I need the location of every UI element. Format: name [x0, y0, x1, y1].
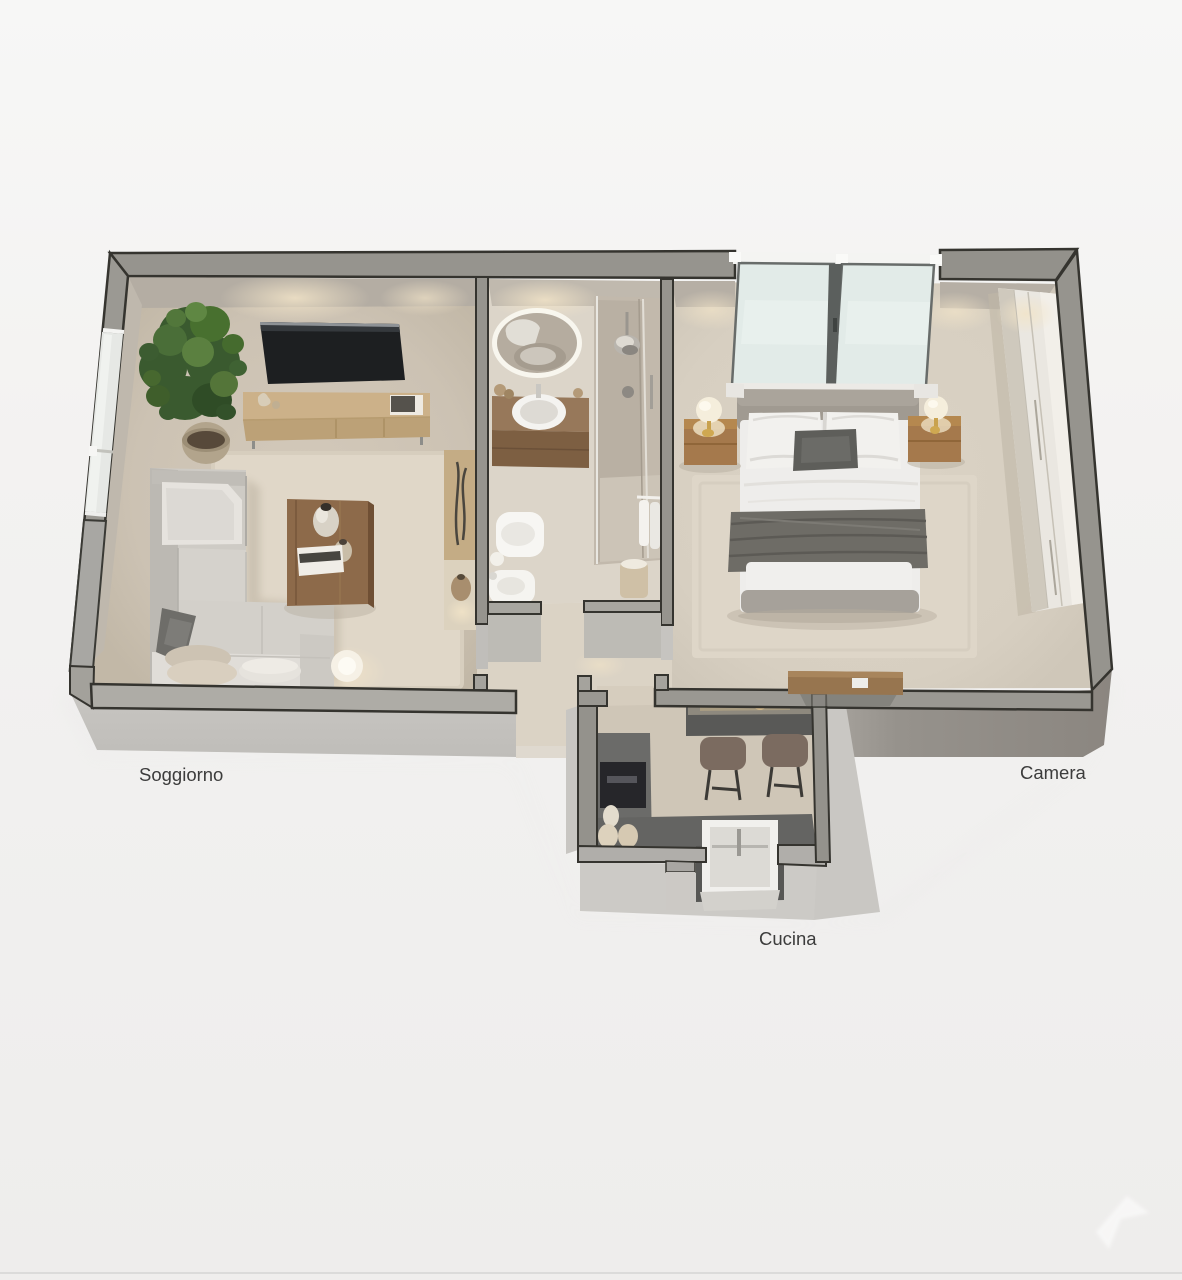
svg-text:Cucina: Cucina	[759, 928, 817, 949]
svg-text:Camera: Camera	[1020, 762, 1087, 783]
svg-text:Soggiorno: Soggiorno	[139, 764, 223, 785]
